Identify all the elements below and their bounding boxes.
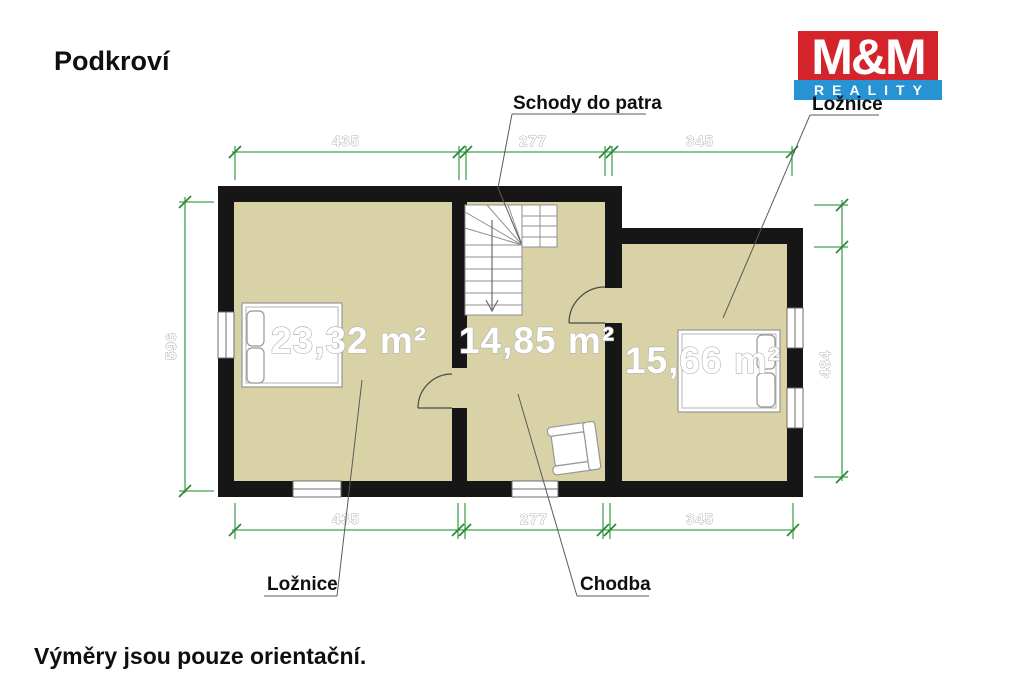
window-right-wall-lower [787,388,803,428]
window-left-wall [218,312,234,358]
window-bottom-hallway [512,481,558,497]
dimension-right: 484 [814,199,848,483]
window-right-wall-upper [787,308,803,348]
wall-right [787,228,803,497]
dim-right: 484 [817,350,834,378]
wall-top-right [605,228,803,244]
dimension-bottom: 435 277 345 [229,503,799,539]
footer-disclaimer: Výměry jsou pouze orientační. [34,643,366,669]
dim-left: 596 [163,332,180,360]
dimension-top: 435 277 345 [229,133,798,180]
area-bedroom-left: 23,32 m² [271,320,427,361]
dimension-left: 596 [163,196,214,497]
floorplan-canvas: Podkroví M&M REALITY [0,0,1024,683]
floorplan-page: Podkroví M&M REALITY [0,0,1024,683]
callout-bedroom-right-label: Ložnice [812,94,883,115]
dim-top-1: 435 [332,133,360,150]
dim-top-3: 345 [686,133,714,150]
door-opening-left [452,368,467,408]
dim-bottom-2: 277 [520,511,548,528]
dim-bottom-3: 345 [686,511,714,528]
wall-top-left [218,186,622,202]
logo-mm-text: M&M [811,29,924,85]
door-opening-right [605,288,622,323]
dim-top-2: 277 [519,133,547,150]
callout-hallway-label: Chodba [580,574,651,595]
page-title: Podkroví [54,46,171,76]
area-hallway: 14,85 m² [459,320,615,361]
window-bottom-bedroom-left [293,481,341,497]
callout-bedroom-left-label: Ložnice [267,574,338,595]
area-bedroom-right: 15,66 m² [625,340,781,381]
mm-reality-logo: M&M REALITY [794,29,942,100]
armchair [547,421,601,475]
callout-stairs-label: Schody do patra [513,93,662,114]
